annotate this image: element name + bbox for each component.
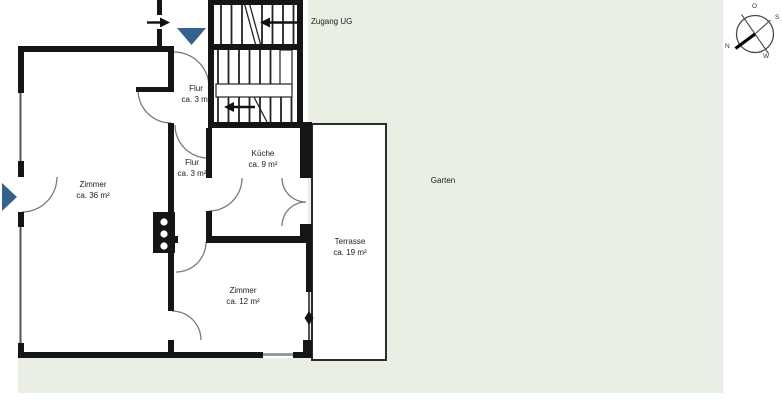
chimney-symbol (153, 212, 175, 253)
compass-label-s: S (775, 14, 779, 21)
stair-rail-horizontal (216, 84, 292, 97)
floor-plan: Zimmer ca. 36 m² Flur ca. 3 m² Flur ca. … (0, 0, 782, 400)
entrance-marker-left-icon (2, 183, 17, 211)
garden-strip (18, 358, 723, 393)
room-label-garten: Garten (431, 176, 455, 187)
entrance-marker-top-icon (177, 28, 206, 45)
floor-plan-canvas (0, 0, 782, 400)
room-label-zimmer-12: Zimmer ca. 12 m² (226, 286, 259, 307)
zugang-ug-label: Zugang UG (311, 17, 352, 26)
room-label-terrasse: Terrasse ca. 19 m² (333, 237, 366, 258)
entry-arrow-icon (160, 18, 170, 28)
room-label-kueche: Küche ca. 9 m² (249, 149, 278, 170)
compass-label-n: N (725, 43, 730, 50)
compass-label-w: W (763, 53, 769, 60)
walls (18, 0, 312, 358)
room-label-flur-upper: Flur ca. 3 m² (182, 84, 211, 105)
compass-label-o: O (752, 3, 757, 10)
room-label-zimmer-36: Zimmer ca. 36 m² (76, 180, 109, 201)
compass-rose (736, 15, 774, 54)
room-label-flur-lower: Flur ca. 3 m² (178, 158, 207, 179)
